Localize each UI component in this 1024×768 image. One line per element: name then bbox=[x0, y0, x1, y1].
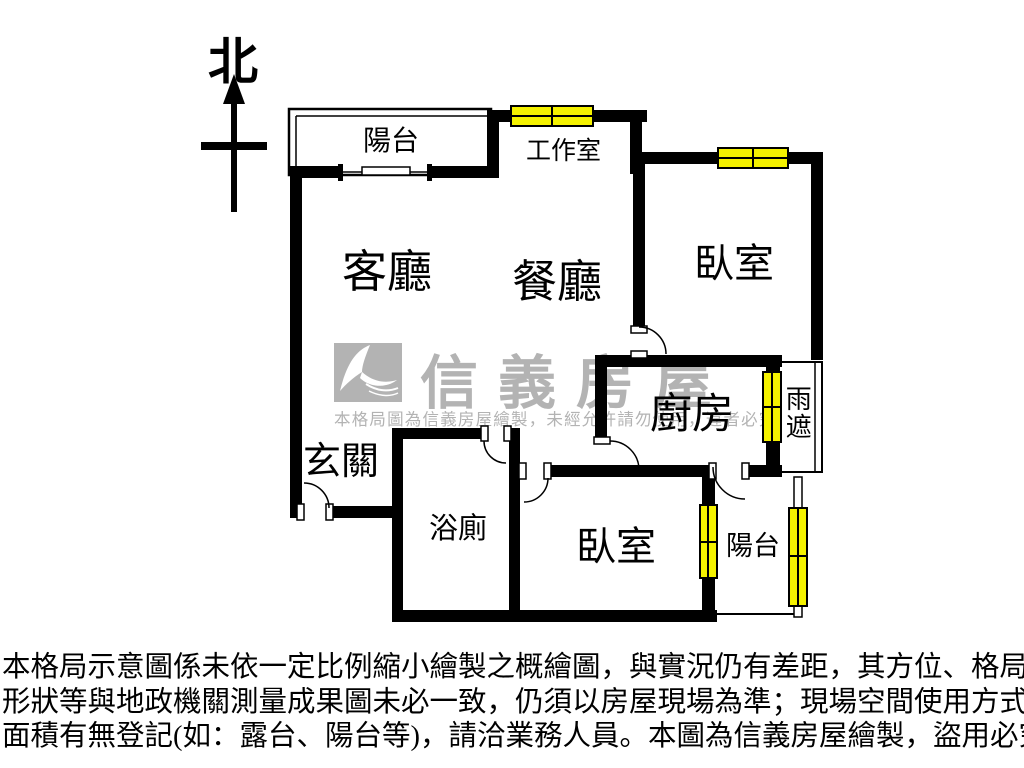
labels: 北 陽台 工作室 客廳 餐廳 臥室 廚房 雨遮 玄關 浴廁 臥室 陽台 本格局示… bbox=[0, 0, 1024, 768]
floor-plan-page: 信義房屋 本格局圖為信義房屋繪製，未經允許請勿使用，違者必究 bbox=[0, 0, 1024, 768]
disclaimer-line-3: 面積有無登記(如：露台、陽台等)，請洽業務人員。本圖為信義房屋繪製，盜用必究。 bbox=[2, 720, 1024, 755]
room-label-living-room: 客廳 bbox=[342, 249, 432, 296]
room-label-workroom: 工作室 bbox=[526, 139, 601, 165]
disclaimer: 本格局示意圖係未依一定比例縮小繪製之概繪圖，與實況仍有差距，其方位、格局、 形狀… bbox=[2, 651, 1024, 755]
room-label-bedroom-bottom: 臥室 bbox=[576, 526, 656, 568]
disclaimer-line-1: 本格局示意圖係未依一定比例縮小繪製之概繪圖，與實況仍有差距，其方位、格局、 bbox=[2, 651, 1024, 686]
room-label-entrance: 玄關 bbox=[303, 443, 379, 483]
room-label-bedroom-top: 臥室 bbox=[694, 243, 774, 285]
room-label-balcony-top: 陽台 bbox=[363, 127, 419, 156]
north-label: 北 bbox=[208, 22, 258, 94]
disclaimer-line-2: 形狀等與地政機關測量成果圖未必一致，仍須以房屋現場為準；現場空間使用方式及 bbox=[2, 686, 1024, 721]
room-label-kitchen: 廚房 bbox=[650, 393, 734, 437]
room-label-dining-room: 餐廳 bbox=[512, 259, 602, 306]
room-label-balcony-bottom: 陽台 bbox=[726, 532, 780, 560]
room-label-bathroom: 浴廁 bbox=[429, 514, 487, 544]
room-label-rain-shelter: 雨遮 bbox=[783, 385, 810, 441]
